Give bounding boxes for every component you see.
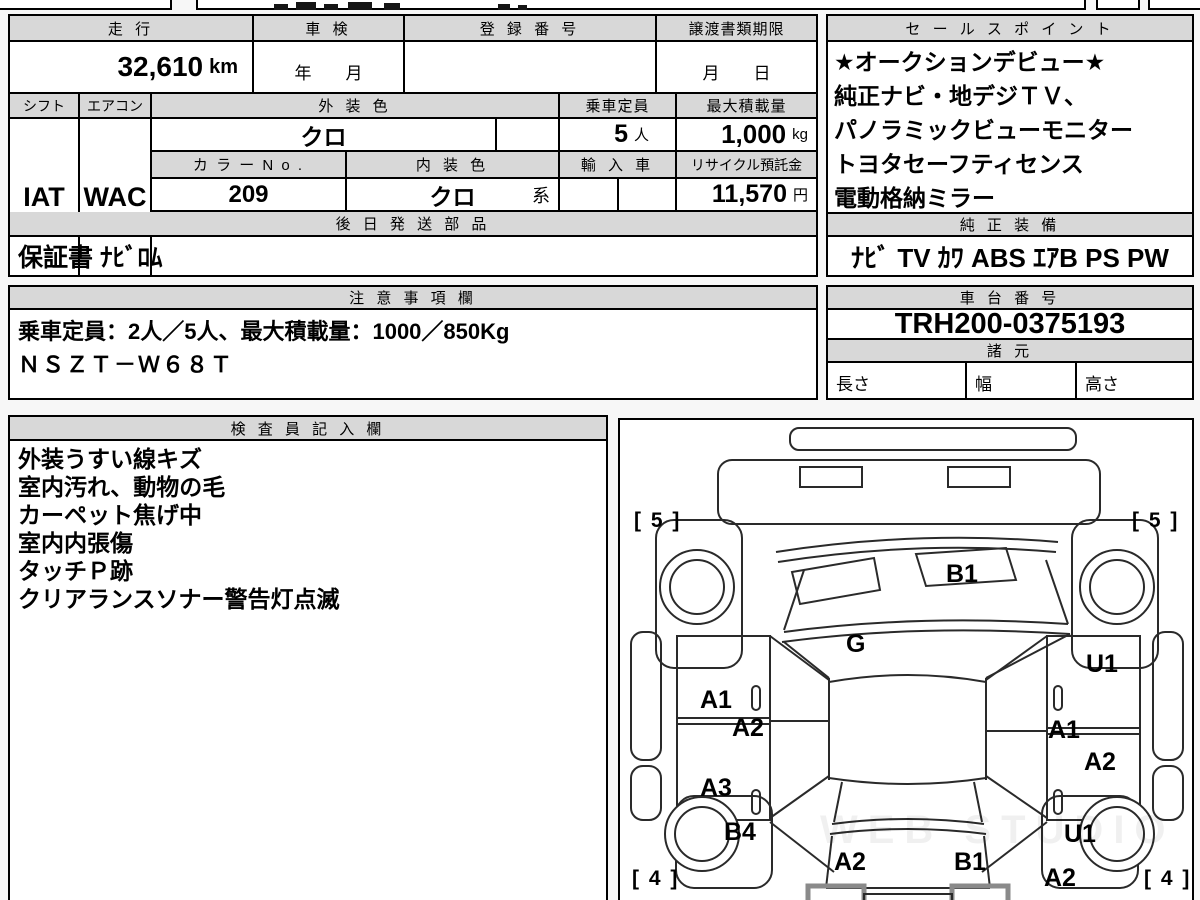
shift-header: シフト <box>10 94 80 119</box>
color-no-value: 209 <box>152 179 347 212</box>
notes-line-2: ＮＳＺＴ－Ｗ６８Ｔ <box>10 346 816 379</box>
import-cell-2 <box>619 179 677 212</box>
top-cut-cell <box>1096 0 1140 10</box>
sales-point-line: トヨタセーフティセンス <box>828 146 1192 180</box>
equipment-value: ﾅﾋﾞ TV ｶﾜ ABS ｴｱB PS PW <box>828 237 1192 275</box>
spec-width-cell: 幅 <box>967 363 1077 398</box>
damage-label-a2-tailgate: A2 <box>834 850 866 875</box>
inspector-line: クリアランスソナー警告灯点滅 <box>10 585 606 613</box>
auction-sheet: 走 行 車 検 登 録 番 号 譲渡書類期限 32,610km 年 月 月 日 … <box>0 0 1200 900</box>
spec-length-cell: 長さ <box>828 363 967 398</box>
notes-content: 乗車定員：2人／5人、最大積載量：1000／850Kg ＮＳＺＴ－Ｗ６８Ｔ <box>10 312 816 396</box>
transfer-deadline-header: 譲渡書類期限 <box>657 16 816 42</box>
interior-color-suffix: 系 <box>532 182 550 208</box>
sales-points-header: セ ー ル ス ポ イ ン ト <box>828 16 1192 42</box>
damage-label-a2-left: A2 <box>732 716 764 741</box>
damage-label-b4-rear-left: B4 <box>724 820 756 845</box>
inspection-header: 車 検 <box>254 16 405 42</box>
sales-points-content: ★オークションデビュー★ 純正ナビ・地デジＴＶ、 パノラミックビューモニター ト… <box>828 44 1192 210</box>
capacity-value: 5人 <box>560 119 677 152</box>
inspector-line: 外装うすい線キズ <box>10 445 606 473</box>
color-no-header: カ ラ ー N o . <box>152 152 347 179</box>
capacity-header: 乗車定員 <box>560 94 677 119</box>
maxload-value: 1,000kg <box>677 119 816 152</box>
registration-header: 登 録 番 号 <box>405 16 657 42</box>
mileage-value: 32,610km <box>10 42 254 94</box>
import-cell-1 <box>560 179 619 212</box>
equipment-header: 純 正 装 備 <box>828 212 1192 237</box>
chassis-value: TRH200-0375193 <box>828 310 1192 340</box>
notes-box: 注 意 事 項 欄 乗車定員：2人／5人、最大積載量：1000／850Kg ＮＳ… <box>8 285 818 400</box>
sales-points-box: セ ー ル ス ポ イ ン ト ★オークションデビュー★ 純正ナビ・地デジＴＶ、… <box>826 14 1194 277</box>
exterior-color-value: クロ <box>152 119 497 152</box>
damage-label-a2-right: A2 <box>1084 750 1116 775</box>
damage-label-u1-rear-right: U1 <box>1064 822 1096 847</box>
notes-line-1: 乗車定員：2人／5人、最大積載量：1000／850Kg <box>10 312 816 346</box>
damage-label-g-hood: G <box>846 632 865 657</box>
vehicle-info-table: 走 行 車 検 登 録 番 号 譲渡書類期限 32,610km 年 月 月 日 … <box>8 14 818 277</box>
recycle-deposit-header: リサイクル預託金 <box>677 152 816 179</box>
top-cut-cell <box>0 0 172 10</box>
inspector-content: 外装うすい線キズ 室内汚れ、動物の毛 カーペット焦げ中 室内内張傷 タッチＰ跡 … <box>10 445 606 895</box>
sales-point-line: パノラミックビューモニター <box>828 112 1192 146</box>
exterior-color-header: 外 装 色 <box>152 94 560 119</box>
damage-label-b1-front: B1 <box>946 562 978 587</box>
import-header: 輸 入 車 <box>560 152 677 179</box>
capacity-unit: 人 <box>634 124 649 145</box>
damage-label-a3-left-lower: A3 <box>700 776 732 801</box>
sales-point-line: 純正ナビ・地デジＴＶ、 <box>828 78 1192 112</box>
damage-label-a2-rear-right-lower: A2 <box>1044 866 1076 891</box>
damage-label-a1-left: A1 <box>700 688 732 713</box>
recycle-deposit-unit: 円 <box>793 184 808 205</box>
maxload-header: 最大積載量 <box>677 94 816 119</box>
mileage-unit: km <box>209 56 238 79</box>
tire-front-right-label: [ 5 ] <box>1132 510 1179 531</box>
top-cut-cell <box>1148 0 1200 10</box>
tire-rear-left-label: [ 4 ] <box>632 868 679 889</box>
registration-value <box>405 42 657 94</box>
interior-color-header: 内 装 色 <box>347 152 560 179</box>
interior-color-value: クロ 系 <box>347 179 560 212</box>
chassis-box: 車 台 番 号 TRH200-0375193 諸 元 長さ 幅 高さ <box>826 285 1194 400</box>
transfer-deadline-value: 月 日 <box>657 42 816 94</box>
aircon-header: エアコン <box>80 94 152 119</box>
inspector-header: 検 査 員 記 入 欄 <box>10 417 606 441</box>
inspector-line: 室内内張傷 <box>10 529 606 557</box>
inspector-line: 室内汚れ、動物の毛 <box>10 473 606 501</box>
mileage-header: 走 行 <box>10 16 254 42</box>
exterior-color-extra-cell <box>497 119 560 152</box>
inspection-value: 年 月 <box>254 42 405 94</box>
later-parts-value: 保証書 ﾅﾋﾞﾛﾑ <box>10 237 816 275</box>
damage-label-a1-right: A1 <box>1048 718 1080 743</box>
inspector-line: カーペット焦げ中 <box>10 501 606 529</box>
damage-label-b1-tailgate: B1 <box>954 850 986 875</box>
sales-point-line: ★オークションデビュー★ <box>828 44 1192 78</box>
spec-height-cell: 高さ <box>1077 363 1192 398</box>
damage-label-u1-right-upper: U1 <box>1086 652 1118 677</box>
recycle-deposit-value: 11,570円 <box>677 179 816 212</box>
watermark: WEB STUDIO <box>820 808 1176 853</box>
inspector-line: タッチＰ跡 <box>10 557 606 585</box>
later-parts-header: 後 日 発 送 部 品 <box>10 212 816 237</box>
notes-header: 注 意 事 項 欄 <box>10 287 816 310</box>
sales-point-line: 電動格納ミラー <box>828 180 1192 214</box>
damage-diagram-box: WEB STUDIO [ 5 ] [ 5 ] [ 4 ] [ 4 ] B1 G … <box>618 418 1194 900</box>
tire-front-left-label: [ 5 ] <box>634 510 681 531</box>
specs-header: 諸 元 <box>828 340 1192 363</box>
top-cut-cell <box>196 0 1086 10</box>
maxload-unit: kg <box>792 126 808 143</box>
tire-rear-right-label: [ 4 ] <box>1144 868 1191 889</box>
inspector-box: 検 査 員 記 入 欄 外装うすい線キズ 室内汚れ、動物の毛 カーペット焦げ中 … <box>8 415 608 900</box>
